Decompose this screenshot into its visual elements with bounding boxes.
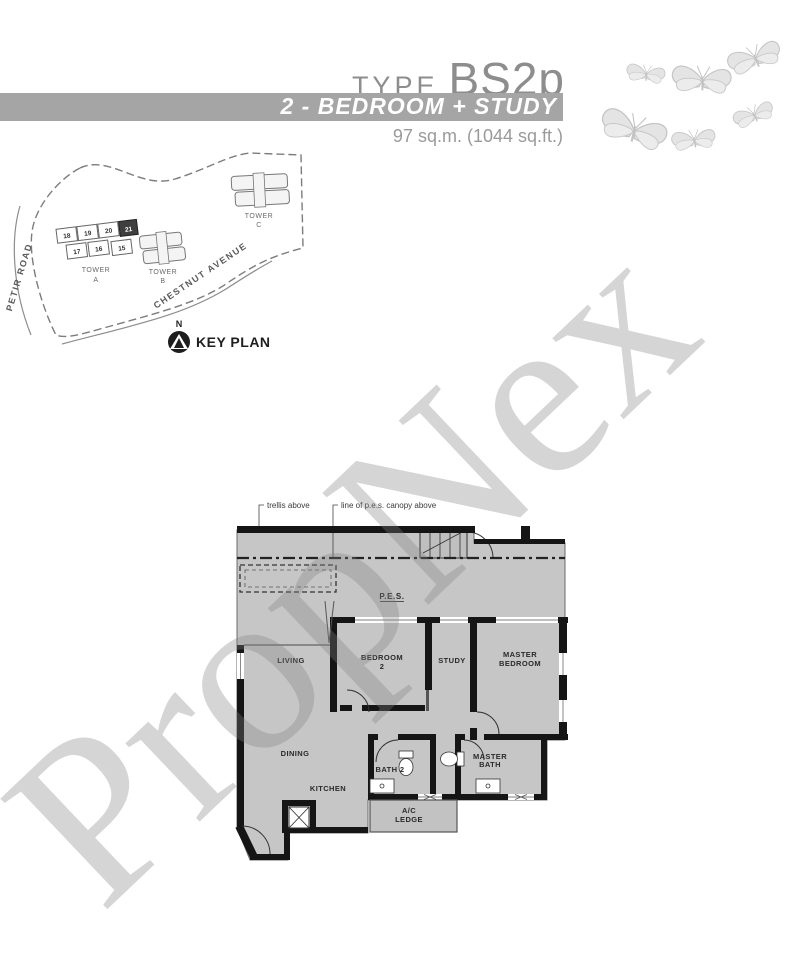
key-plan-title: KEY PLAN (196, 334, 271, 350)
room-label-living: LIVING (277, 656, 304, 665)
tower-b-letter: B (160, 278, 165, 285)
butterfly-icon (671, 128, 716, 151)
butterfly-icon (598, 105, 670, 153)
svg-text:20: 20 (105, 227, 113, 235)
north-compass-icon (168, 331, 190, 353)
unit-20: 20 (98, 222, 120, 238)
master-bath-toilet (441, 752, 465, 766)
canopy-annotation: line of p.e.s. canopy above (341, 501, 437, 510)
tower-b-footprint (139, 230, 186, 266)
butterfly-decoration (590, 10, 800, 175)
unit-description-banner: 2 - BEDROOM + STUDY (0, 93, 563, 121)
tower-a-letter: A (93, 277, 98, 284)
petir-road-label: PETIR ROAD (4, 242, 34, 312)
unit-18: 18 (56, 227, 78, 243)
room-label-bedroom2: BEDROOM (361, 653, 403, 662)
trellis-annotation: trellis above (267, 501, 310, 510)
tower-c-footprint (231, 172, 290, 209)
room-label-bedroom2-num: 2 (380, 662, 385, 671)
tower-a-label: TOWER (82, 267, 110, 274)
unit-16: 16 (88, 240, 110, 256)
north-label: N (176, 319, 183, 329)
room-label-dining: DINING (281, 749, 310, 758)
key-plan: PETIR ROAD CHESTNUT AVENUE 18 19 20 21 1… (0, 148, 330, 373)
room-label-master: MASTER (503, 650, 537, 659)
room-label-bath2: BATH 2 (376, 765, 405, 774)
svg-text:15: 15 (118, 245, 126, 253)
butterfly-icon (671, 64, 731, 94)
svg-text:18: 18 (63, 233, 71, 241)
room-label-master2: BEDROOM (499, 659, 541, 668)
tower-b-label: TOWER (149, 269, 177, 276)
tower-a-units: 18 19 20 21 17 16 15 (56, 219, 140, 262)
butterfly-icon (626, 62, 666, 84)
svg-text:21: 21 (125, 226, 133, 234)
tower-c-label: TOWER (245, 213, 273, 220)
room-label-acledge2: LEDGE (395, 815, 423, 824)
svg-text:16: 16 (95, 246, 103, 254)
room-label-kitchen: KITCHEN (310, 784, 346, 793)
room-label-acledge: A/C (402, 806, 416, 815)
butterfly-icon (731, 99, 776, 130)
room-label-pes: P.E.S. (379, 592, 404, 601)
unit-area: 97 sq.m. (1044 sq.ft.) (0, 126, 563, 147)
room-label-masterbath2: BATH (479, 760, 501, 769)
floor-plan: trellis above line of p.e.s. canopy abov… (228, 495, 590, 868)
unit-19: 19 (77, 224, 99, 240)
unit-21-highlighted: 21 (119, 219, 139, 236)
unit-17: 17 (66, 243, 88, 259)
bath2-sink (370, 779, 394, 793)
svg-text:19: 19 (84, 230, 92, 238)
unit-15: 15 (111, 239, 133, 255)
stove-icon (289, 807, 309, 828)
master-bath-sink (476, 779, 500, 793)
svg-text:17: 17 (73, 248, 81, 256)
butterfly-icon (725, 38, 783, 77)
room-label-study: STUDY (438, 656, 465, 665)
tower-c-letter: C (256, 222, 262, 229)
